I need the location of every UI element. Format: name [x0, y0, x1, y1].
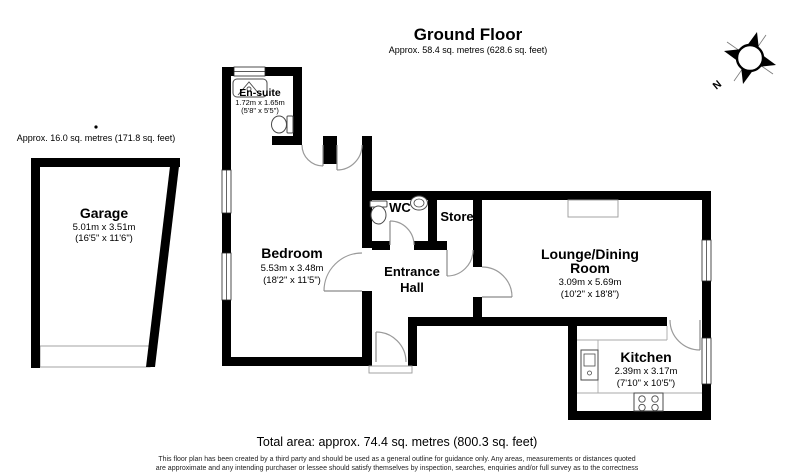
front-door-threshold — [369, 366, 412, 373]
garage-dim-imperial: (16'5" x 11'6") — [75, 233, 133, 244]
window-ensuite-top — [234, 67, 265, 76]
door-landing-right — [337, 145, 362, 170]
garage-door — [40, 346, 150, 367]
disclaimer-line2: are approximate and any intending purcha… — [156, 465, 639, 472]
page-title: Ground Floor — [414, 25, 523, 44]
window-bedroom-lower — [222, 253, 231, 300]
floor-plan-drawing: Ground Floor Approx. 58.4 sq. metres (62… — [0, 0, 800, 476]
garage-wall-left — [31, 158, 40, 368]
store-label: Store — [440, 209, 473, 224]
garage-area-annotation: Approx. 16.0 sq. metres (171.8 sq. feet) — [17, 133, 176, 143]
lounge-label-line2: Room — [570, 260, 610, 276]
door-landing-left — [302, 145, 323, 166]
door-wc — [390, 221, 414, 245]
bedroom-dim-imperial: (18'2" x 11'5") — [263, 275, 321, 286]
kitchen-sink-icon — [581, 350, 598, 380]
entrance-hall-label-line2: Hall — [400, 280, 424, 295]
wc-basin-icon — [411, 196, 428, 210]
garage-dim-metric: 5.01m x 3.51m — [73, 222, 136, 233]
garage-wall-right-slanted — [146, 158, 180, 367]
kitchen-dim-metric: 2.39m x 3.17m — [615, 366, 678, 377]
total-area-text: Total area: approx. 74.4 sq. metres (800… — [257, 435, 538, 449]
lounge-dim-imperial: (10'2" x 18'8") — [561, 289, 619, 300]
garage-wall-top — [31, 158, 180, 167]
lounge-recess — [568, 200, 618, 217]
wc-toilet-icon — [370, 201, 387, 224]
kitchen-dim-imperial: (7'10" x 10'5") — [617, 378, 675, 389]
annotation-marker-dot — [94, 125, 97, 128]
window-bedroom-upper — [222, 170, 231, 213]
garage-label: Garage — [80, 205, 128, 221]
wc-label: WC — [389, 200, 411, 215]
bedroom-label: Bedroom — [261, 245, 322, 261]
page-subtitle: Approx. 58.4 sq. metres (628.6 sq. feet) — [389, 45, 548, 55]
door-pier — [323, 136, 337, 164]
ensuite-dim-imperial: (5'8" x 5'5") — [241, 106, 279, 115]
disclaimer-line1: This floor plan has been created by a th… — [158, 456, 635, 463]
window-kitchen — [702, 338, 711, 384]
lounge-dim-metric: 3.09m x 5.69m — [559, 277, 622, 288]
compass-icon: N — [711, 32, 776, 92]
doors — [302, 145, 700, 362]
door-front-entrance — [376, 332, 406, 362]
entrance-hall-label-line1: Entrance — [384, 264, 440, 279]
bedroom-dim-metric: 5.53m x 3.48m — [261, 263, 324, 274]
cooker-hob-icon — [634, 393, 663, 411]
garage-block — [31, 158, 180, 368]
door-kitchen — [670, 320, 700, 350]
floor-plan-page: Ground Floor Approx. 58.4 sq. metres (62… — [0, 0, 800, 476]
door-lounge — [482, 267, 512, 297]
kitchen-label: Kitchen — [620, 349, 671, 365]
compass-north-label: N — [711, 78, 725, 92]
door-store — [447, 250, 473, 276]
ensuite-toilet-icon — [272, 116, 294, 133]
window-lounge — [702, 240, 711, 281]
door-bedroom — [324, 253, 362, 291]
